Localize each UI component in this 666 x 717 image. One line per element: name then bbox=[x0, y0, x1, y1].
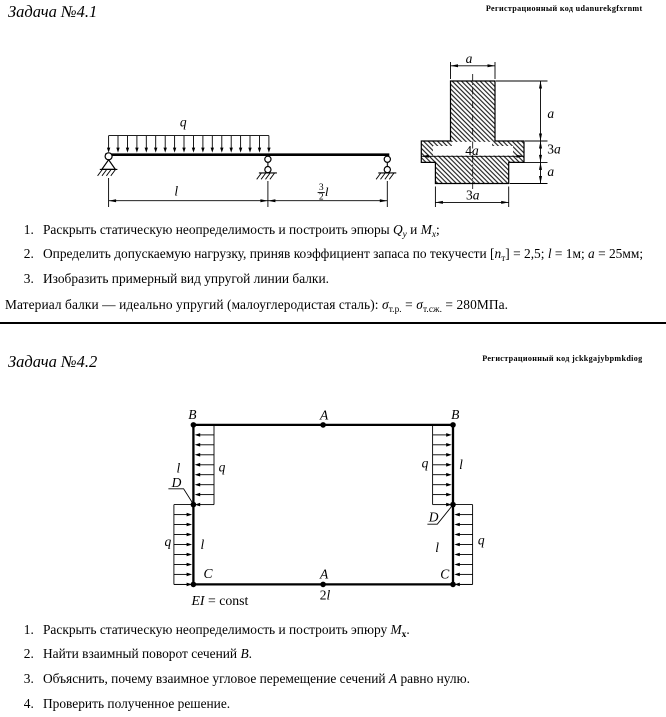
svg-text:l: l bbox=[325, 184, 329, 199]
svg-text:2: 2 bbox=[319, 192, 324, 202]
svg-text:A: A bbox=[319, 407, 329, 422]
svg-text:B: B bbox=[188, 407, 196, 422]
svg-text:A: A bbox=[319, 566, 329, 581]
svg-text:q: q bbox=[422, 456, 429, 471]
svg-text:B: B bbox=[451, 407, 459, 422]
svg-text:4a: 4a bbox=[465, 143, 479, 158]
svg-text:q: q bbox=[165, 534, 172, 549]
svg-text:a: a bbox=[547, 106, 554, 121]
svg-text:D: D bbox=[171, 475, 182, 490]
svg-text:l: l bbox=[174, 184, 178, 199]
svg-text:D: D bbox=[428, 510, 439, 525]
svg-text:l: l bbox=[435, 540, 439, 555]
svg-text:q: q bbox=[180, 115, 187, 130]
svg-text:l: l bbox=[201, 537, 205, 552]
svg-text:3a: 3a bbox=[466, 187, 480, 202]
svg-text:q: q bbox=[219, 460, 226, 475]
svg-text:q: q bbox=[478, 532, 485, 547]
svg-text:a: a bbox=[547, 164, 554, 179]
svg-text:C: C bbox=[203, 566, 213, 581]
svg-text:EI = const: EI = const bbox=[191, 593, 249, 608]
svg-text:2l: 2l bbox=[320, 587, 331, 602]
svg-text:l: l bbox=[177, 460, 181, 475]
svg-text:l: l bbox=[459, 457, 463, 472]
svg-text:C: C bbox=[440, 566, 450, 581]
svg-text:3a: 3a bbox=[547, 142, 561, 157]
svg-text:a: a bbox=[466, 51, 473, 66]
